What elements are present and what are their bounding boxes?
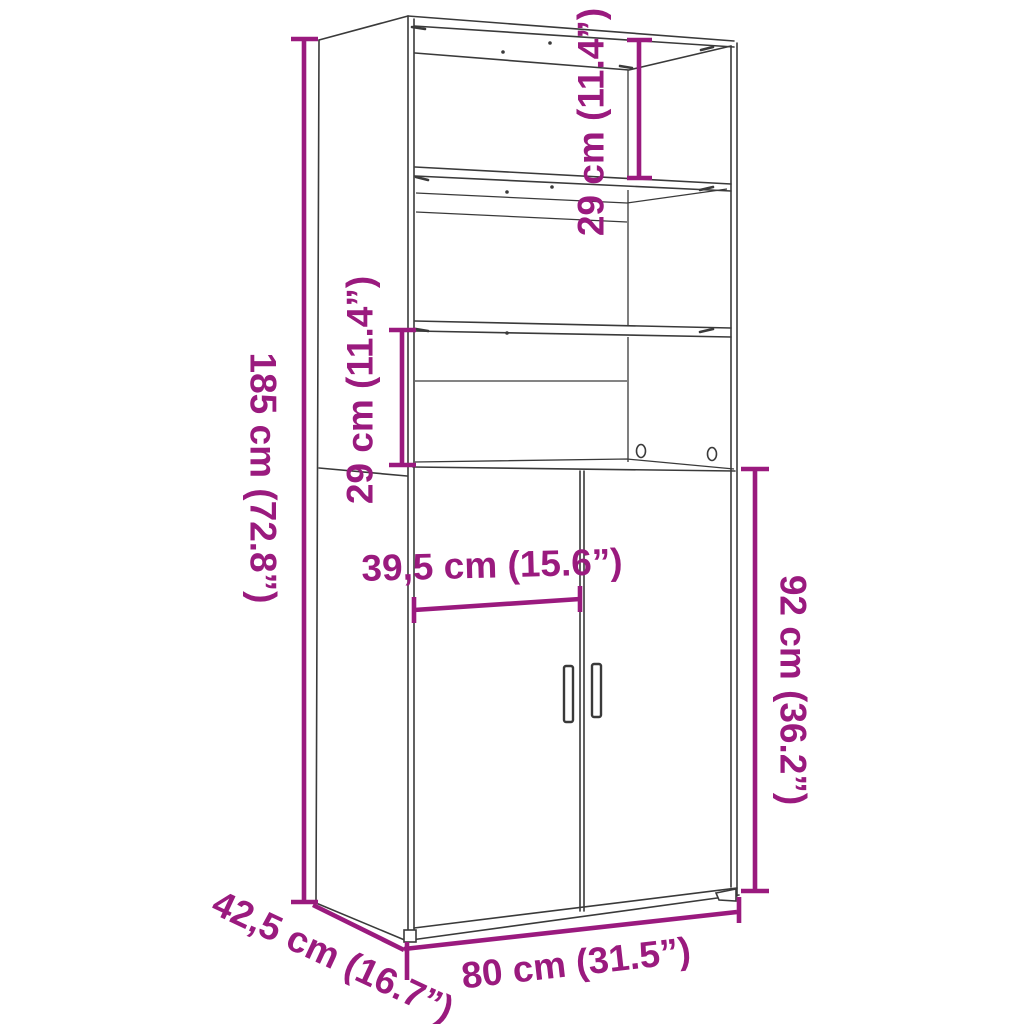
shelf2-bottom-edge — [415, 331, 731, 337]
left-door-handle — [564, 666, 573, 722]
cam-lock-left — [637, 445, 646, 458]
door-width-dimension — [414, 586, 580, 623]
overall-height-label: 185 cm (72.8”) — [245, 353, 282, 604]
side-panel-back-edge — [316, 40, 319, 903]
left-foot — [404, 930, 416, 942]
screw-dot-top-1 — [501, 50, 505, 54]
middle-shelf-dimension — [389, 330, 416, 465]
screw-dash-shelf1-left — [416, 177, 428, 180]
right-door-handle — [592, 664, 601, 717]
side-panel-top-edge — [319, 16, 408, 40]
cabinet-drawing — [0, 0, 1024, 1024]
cam-lock-right — [708, 448, 717, 461]
doors-bottom-edge — [414, 888, 737, 928]
lower-section-height-label: 92 cm (36.2”) — [775, 575, 812, 805]
screw-dot-shelf2 — [505, 331, 509, 335]
middle-shelf-height-label: 29 cm (11.4”) — [342, 276, 379, 504]
screw-dot-shelf1-1 — [505, 190, 509, 194]
dimension-lines — [291, 39, 769, 980]
door-width-dimension-line — [414, 599, 580, 610]
screw-dash-shelf2-right — [700, 329, 713, 332]
division-front-edge — [413, 467, 735, 471]
screw-dot-top-2 — [548, 41, 552, 45]
shelf2-front-edge — [415, 321, 731, 328]
door-width-label: 39,5 cm (15.6”) — [361, 543, 623, 587]
door-divider-line — [580, 471, 584, 911]
height-dimension — [291, 39, 318, 902]
dimension-diagram: 185 cm (72.8”) 29 cm (11.4”) 29 cm (11.4… — [0, 0, 1024, 1024]
top-shelf-dimension — [627, 40, 652, 178]
screw-dot-shelf1-2 — [550, 185, 554, 189]
lower-height-dimension — [741, 469, 769, 891]
screw-dash-top-right — [701, 47, 713, 50]
screw-dash-top-corner — [620, 66, 632, 68]
top-shelf-height-label: 29 cm (11.4”) — [573, 8, 610, 236]
screw-marks — [412, 27, 717, 461]
